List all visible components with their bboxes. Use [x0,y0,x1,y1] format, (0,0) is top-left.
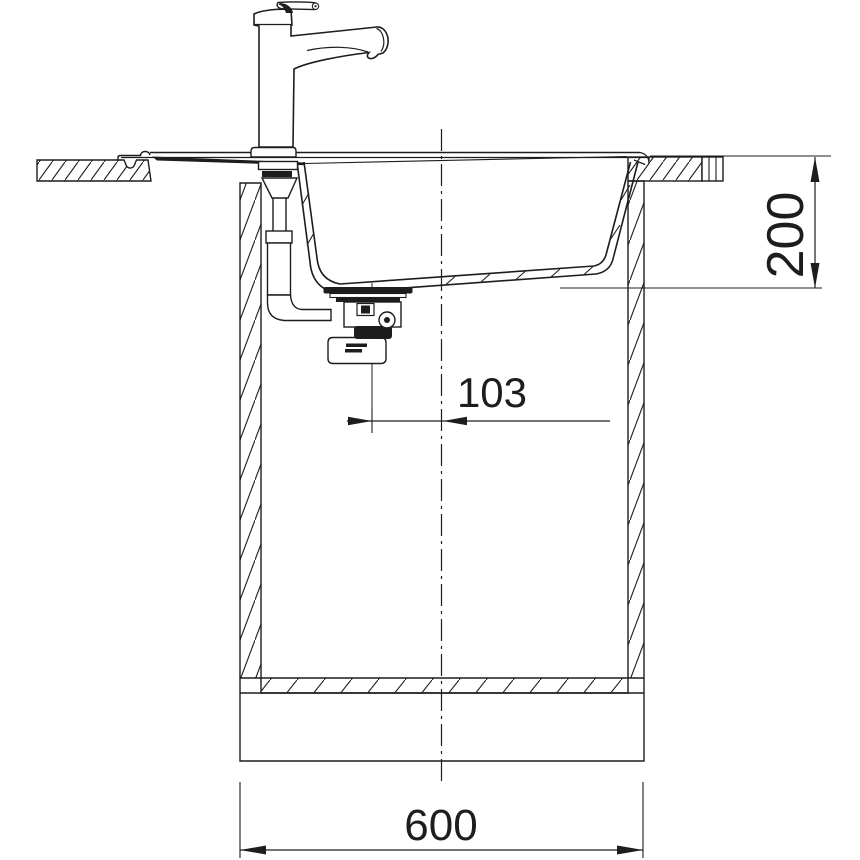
hose-collar [266,231,292,243]
drain-flange-top [324,287,413,294]
technical-drawing-page: 200 103 600 [0,0,860,860]
dimension-value-drain-offset: 103 [457,369,527,416]
countertop-right-profile [628,157,702,181]
mounting-bracket [259,162,298,170]
faucet-supply-hose [259,162,332,321]
drain-knob-center [384,317,390,323]
hose-body [268,243,291,295]
drain-flange-mid [330,294,406,298]
dimension-drain-offset: 103 [347,369,610,433]
dimension-cabinet-width: 600 [240,782,643,858]
arrowhead-left [443,417,467,425]
faucet-base [251,148,296,158]
arrowhead-up [811,157,820,182]
countertop-left-section [37,160,151,181]
cabinet-left-wall [240,183,261,678]
hose-elbow [268,295,332,321]
faucet-body-spout [254,9,388,147]
dimension-value-bowl-depth: 200 [757,192,815,279]
cabinet-right-wall [628,181,644,678]
hose-upper-tube [273,198,286,231]
bowl-section-ticks [302,185,630,285]
drain-clamp-block [361,306,370,314]
sink-basin [118,151,649,293]
mounting-funnel [262,178,297,198]
countertop-left-profile [37,160,151,181]
countertop-right-section [628,157,723,181]
sink-section-drawing: 200 103 600 [0,0,860,860]
bowl-inner-wall [304,162,631,284]
arrowhead-right [617,846,643,855]
cabinet-bottom-panel [261,678,628,693]
mounting-nut [262,171,292,177]
countertop-edge-band [702,157,723,181]
drain-label-mark [345,349,362,353]
faucet [251,2,388,157]
arrowhead-left [240,846,266,855]
bowl-outer-wall [297,162,638,293]
drain-assembly [324,283,413,433]
arrowhead-right [348,417,372,425]
dimension-value-cabinet-width: 600 [404,801,477,850]
lever-end-dot [314,5,316,7]
drain-label-mark [346,344,367,348]
